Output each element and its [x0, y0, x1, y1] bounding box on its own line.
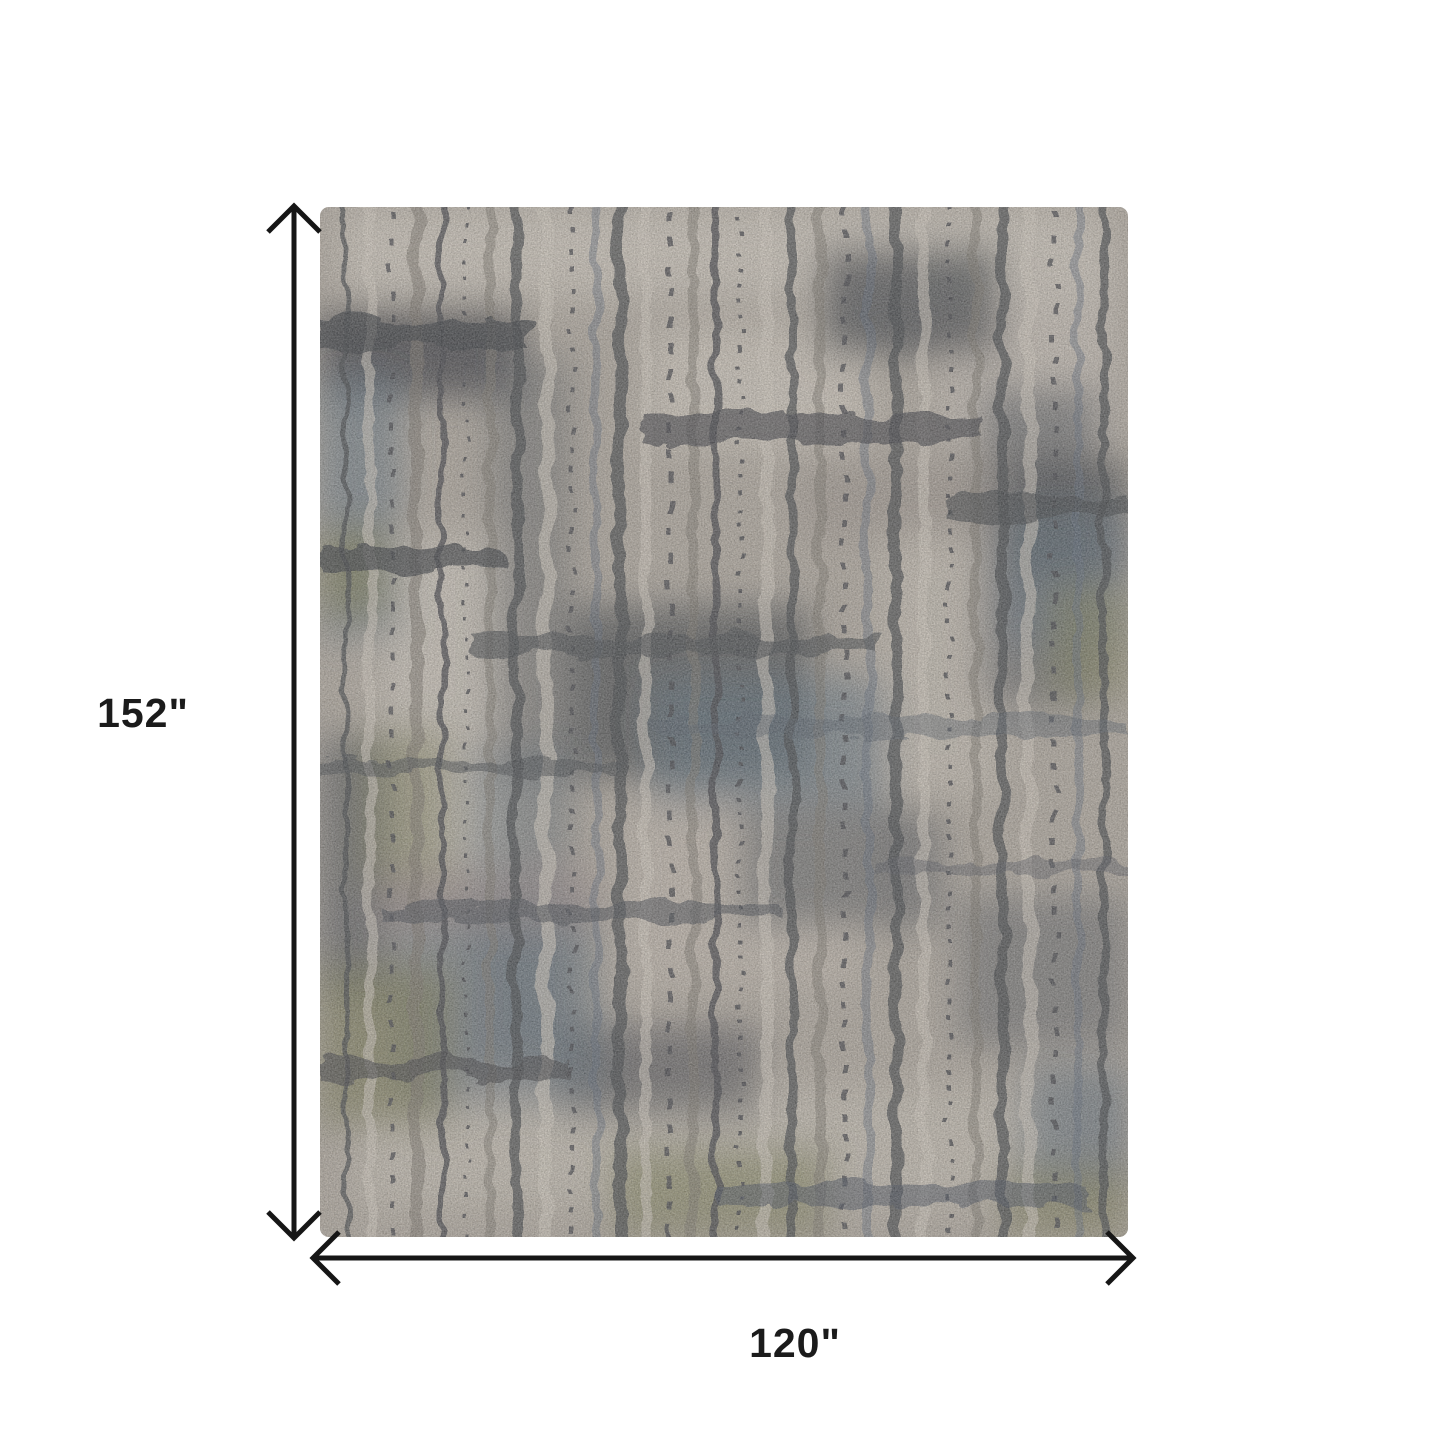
arrow-left-icon: [313, 1232, 339, 1284]
rug-haze: [320, 207, 1128, 1237]
arrow-down-icon: [268, 1212, 320, 1238]
product-dimension-diagram: 152" 120": [0, 0, 1445, 1445]
rug-image: [320, 207, 1128, 1237]
height-dimension-label: 152": [88, 693, 198, 734]
vertical-dimension-arrow: [268, 206, 320, 1238]
rug-pattern-graphic: [320, 207, 1128, 1237]
arrow-right-icon: [1107, 1232, 1133, 1284]
arrow-up-icon: [268, 206, 320, 232]
width-dimension-label: 120": [745, 1323, 845, 1364]
horizontal-dimension-arrow: [313, 1232, 1133, 1284]
